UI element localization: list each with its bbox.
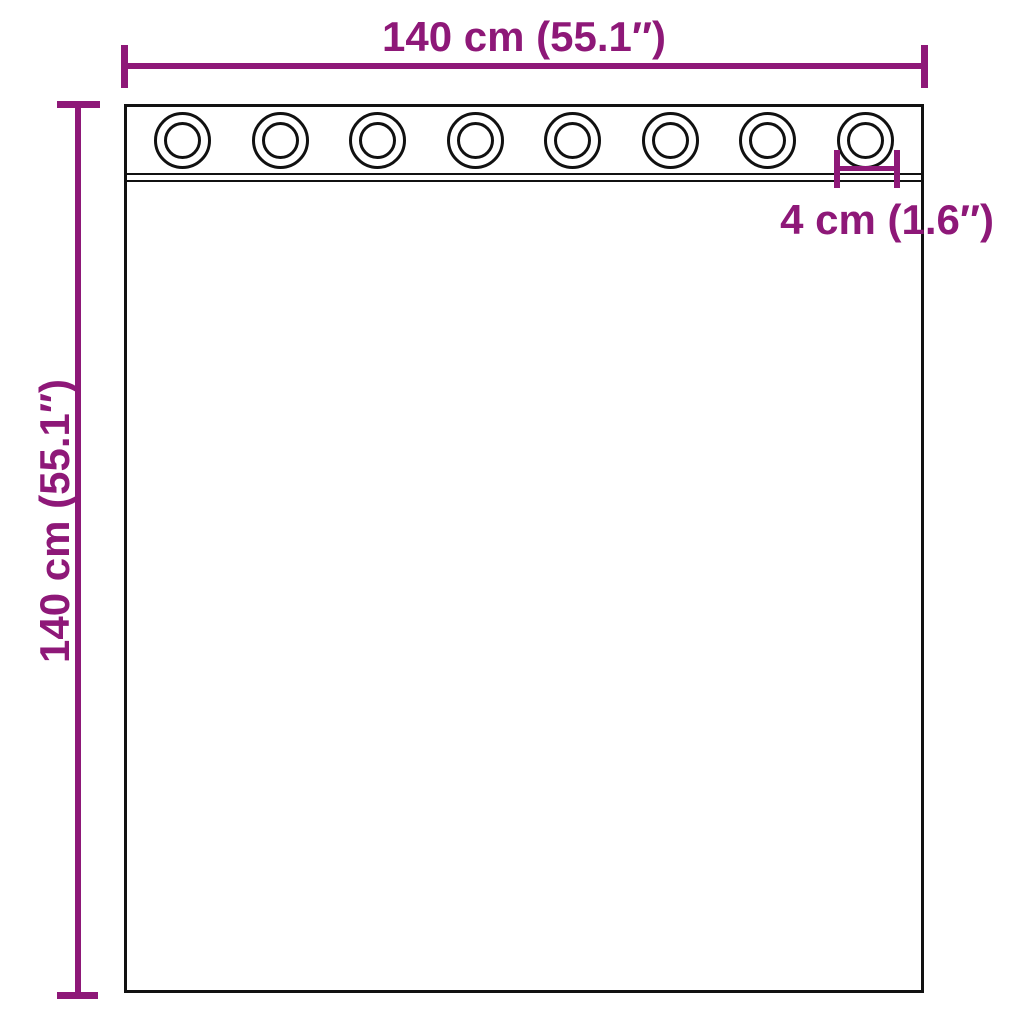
grommet (349, 112, 406, 169)
grommet-hole (554, 122, 591, 159)
grommet-hole (262, 122, 299, 159)
grommet (252, 112, 309, 169)
width-dimension-label: 140 cm (55.1″) (124, 16, 924, 58)
width-dimension-line (124, 63, 924, 69)
grommet-hole (457, 122, 494, 159)
header-band-stitch-line (127, 180, 921, 182)
grommet-hole (847, 122, 884, 159)
grommet-hole (164, 122, 201, 159)
grommet (642, 112, 699, 169)
grommet (837, 112, 894, 169)
height-dimension-label: 140 cm (55.1″) (34, 379, 76, 663)
height-dimension-tick-top (57, 101, 100, 108)
grommet (447, 112, 504, 169)
grommet (544, 112, 601, 169)
diagram-canvas: 140 cm (55.1″) 140 cm (55.1″) 4 cm (1.6″… (0, 0, 1024, 1024)
grommet-hole (359, 122, 396, 159)
grommet-dimension-line (836, 166, 898, 171)
grommet-hole (652, 122, 689, 159)
curtain-header-band (127, 107, 921, 175)
grommet (154, 112, 211, 169)
grommet-row (127, 112, 921, 169)
grommet-hole (749, 122, 786, 159)
grommet-dimension-tick-right (894, 150, 900, 188)
grommet-dimension-label: 4 cm (1.6″) (780, 199, 994, 241)
grommet (739, 112, 796, 169)
grommet-dimension-tick-left (834, 150, 840, 188)
height-dimension-tick-bottom (57, 992, 98, 999)
